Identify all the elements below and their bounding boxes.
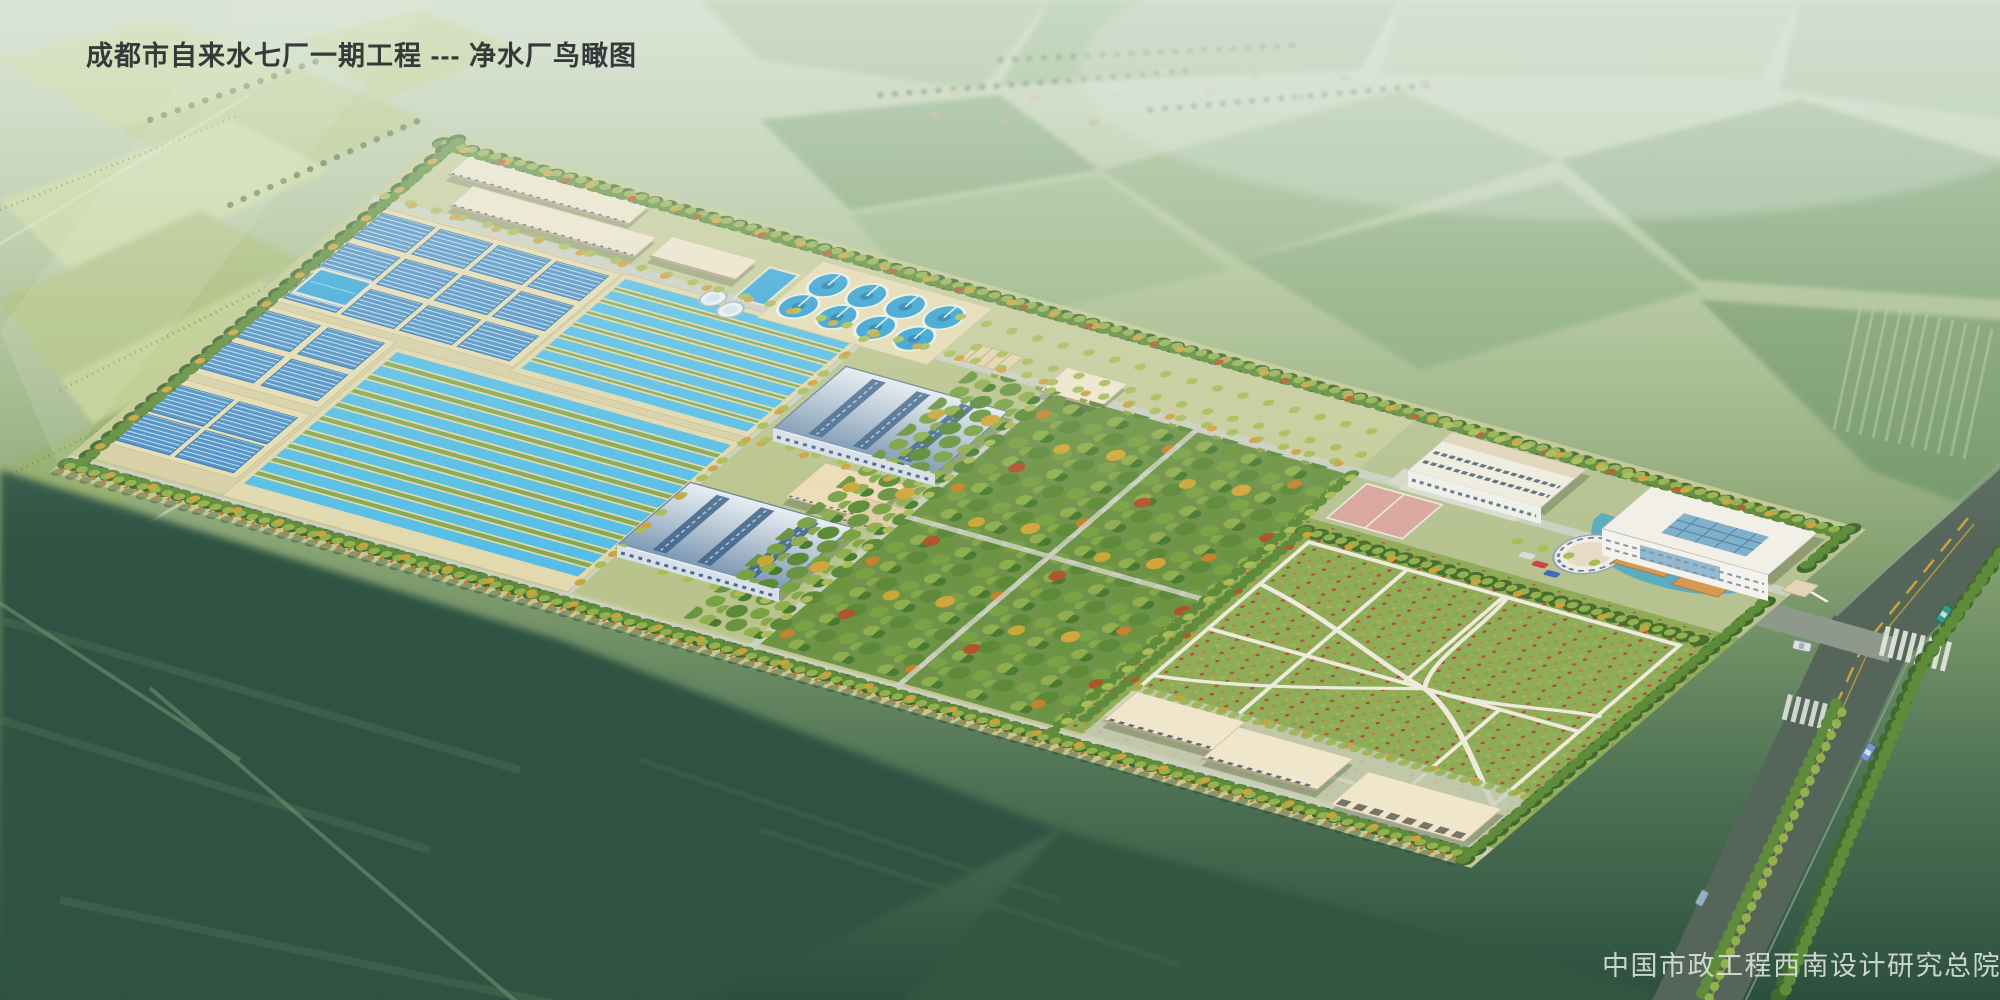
image-title: 成都市自来水七厂一期工程 --- 净水厂鸟瞰图	[86, 34, 637, 73]
designer-credit: 中国市政工程西南设计研究总院	[1602, 944, 2000, 983]
aerial-scene	[0, 0, 2000, 1000]
rendering-canvas: 成都市自来水七厂一期工程 --- 净水厂鸟瞰图 中国市政工程西南设计研究总院	[0, 0, 2000, 1000]
atmosphere-haze	[0, 0, 2000, 1000]
